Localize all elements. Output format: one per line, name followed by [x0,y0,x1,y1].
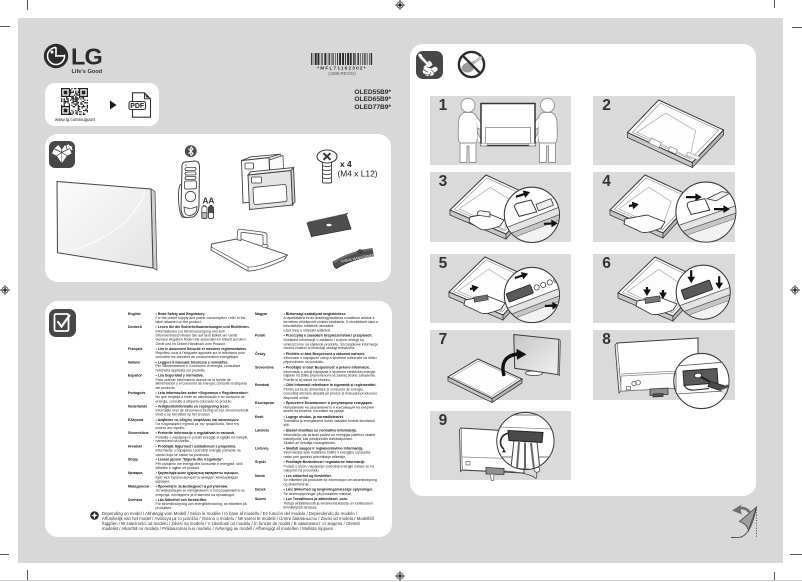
svg-text:PDF: PDF [130,103,145,110]
svg-text:Life's Good: Life's Good [72,69,103,75]
svg-text:AA: AA [203,197,215,206]
svg-text:LG: LG [71,44,102,70]
svg-text:x 4: x 4 [340,159,352,169]
svg-text:(M4 x L12): (M4 x L12) [338,169,378,179]
